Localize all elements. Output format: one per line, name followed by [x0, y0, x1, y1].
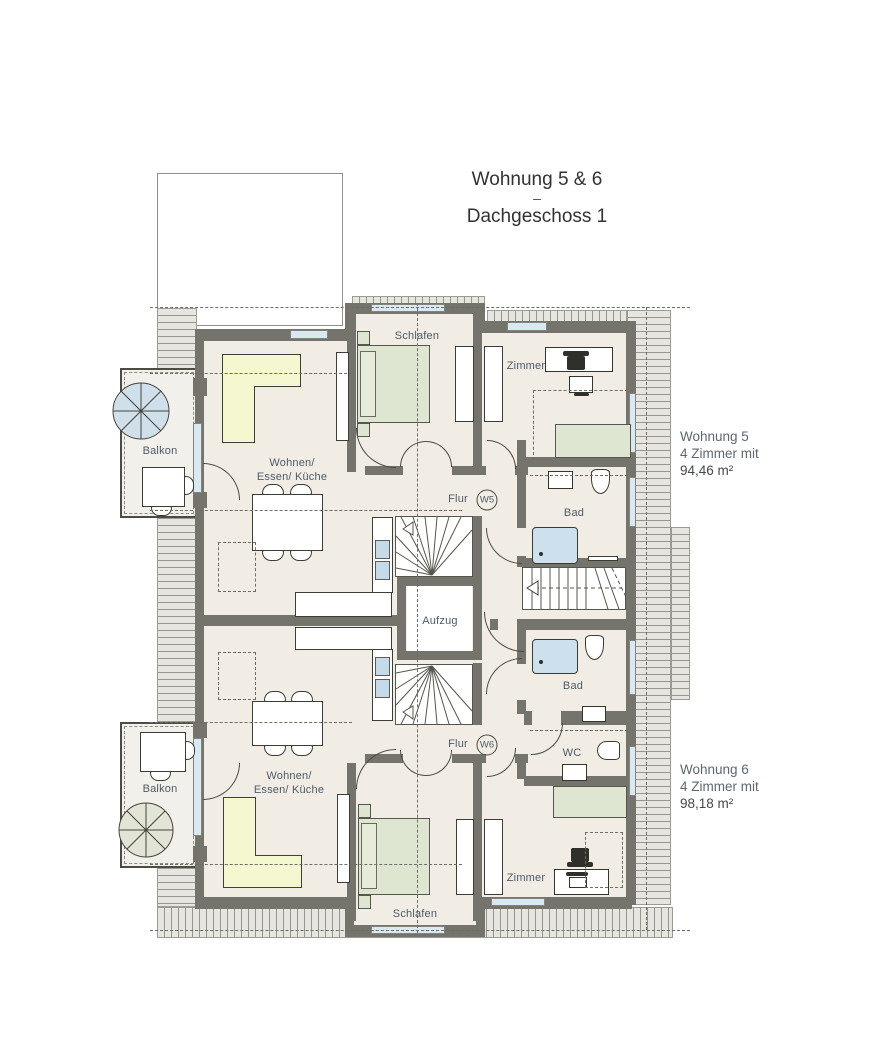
wardrobe: [455, 346, 474, 422]
room-label-bad-w6: Bad: [563, 680, 583, 692]
sofa-symbol: [222, 386, 255, 443]
roof-slope-dashed-line: [646, 307, 647, 930]
shower-drain: [539, 660, 543, 664]
chair: [264, 691, 286, 702]
room-label-schlafen-w6: Schlafen: [393, 908, 437, 920]
kitchen-counter: [295, 627, 392, 650]
unit-badge-w6: W6: [477, 735, 498, 756]
chair: [290, 484, 312, 495]
wall-segment: [473, 763, 482, 921]
title-separator: –: [467, 191, 607, 206]
sideboard: [555, 424, 631, 458]
sofa-joint: [223, 385, 254, 388]
roof-slope-dashed-line: [530, 475, 628, 476]
room-label-wohnen-w5: Wohnen/: [269, 457, 314, 469]
wall-segment: [397, 577, 482, 586]
roof-slope-dashed-line: [150, 510, 462, 511]
wall-segment: [452, 466, 486, 475]
room-label-essen-w6: Essen/ Küche: [254, 784, 324, 796]
room-label-schlafen-w5: Schlafen: [395, 330, 439, 342]
nightstand: [358, 895, 371, 909]
sideboard: [553, 786, 627, 818]
roof-hatch: [157, 308, 197, 373]
wall-segment: [515, 754, 528, 763]
round-table-parasol: [118, 802, 175, 859]
wardrobe: [484, 819, 503, 895]
room-label-bad-w5: Bad: [564, 507, 584, 519]
room-label-zimmer-w5: Zimmer: [507, 360, 545, 372]
washbasin: [582, 706, 606, 722]
wall-segment: [193, 846, 207, 862]
wardrobe: [337, 794, 350, 883]
wardrobe: [484, 346, 503, 422]
window: [629, 477, 636, 527]
wall-segment: [476, 321, 632, 333]
appliance: [375, 540, 390, 559]
square-table: [140, 732, 186, 772]
nightstand: [358, 804, 371, 818]
wall-segment: [524, 619, 628, 630]
room-label-balkon-w6: Balkon: [143, 783, 178, 795]
wardrobe: [336, 352, 349, 441]
winder-stair-w5: [395, 516, 473, 577]
wall-segment: [473, 516, 482, 578]
wall-segment: [452, 754, 486, 763]
washbasin: [562, 764, 587, 781]
wohnung6-rooms: 4 Zimmer mit: [680, 778, 759, 795]
wohnung6-area: 98,18 m²: [680, 795, 759, 812]
window: [491, 898, 545, 906]
shower: [532, 527, 578, 564]
wall-segment: [195, 329, 352, 341]
room-label-essen-w5: Essen/ Küche: [257, 471, 327, 483]
dining-table: [252, 701, 323, 746]
floor-plan: Wohnung 5 & 6 – Dachgeschoss 1 Wohnung 5…: [0, 0, 889, 1063]
appliance: [375, 657, 390, 676]
wohnung5-area: 94,46 m²: [680, 462, 759, 479]
wall-segment: [365, 466, 403, 475]
winder-stair-w6: [395, 664, 473, 725]
wall-segment: [193, 378, 207, 396]
office-chair: [567, 356, 585, 370]
wall-segment: [473, 577, 482, 660]
roof-hatch: [157, 868, 197, 907]
unit-badge-w5: W5: [477, 490, 498, 511]
nightstand: [357, 331, 370, 345]
roof-slope-dashed-line: [150, 864, 462, 865]
wohnung6-name: Wohnung 6: [680, 761, 759, 778]
room-label-wc-w6: WC: [563, 747, 582, 759]
room-label-wohnen-w6: Wohnen/: [266, 770, 311, 782]
chair: [262, 484, 284, 495]
window: [193, 423, 202, 493]
wardrobe: [456, 819, 474, 895]
room-label-balkon-w5: Balkon: [143, 445, 178, 457]
kitchen-counter: [295, 592, 392, 617]
room-label-aufzug: Aufzug: [422, 615, 457, 627]
toilet: [597, 741, 620, 760]
wohnung5-name: Wohnung 5: [680, 428, 759, 445]
appliance: [375, 561, 390, 580]
appliance: [375, 679, 390, 698]
roof-hatch: [671, 527, 690, 700]
square-table: [142, 467, 185, 507]
roof-slope-dashed-line: [150, 722, 352, 723]
towel-rail: [588, 556, 618, 561]
roof-outline-rect: [157, 173, 343, 326]
shower: [532, 639, 578, 674]
drawing-title: Wohnung 5 & 6 – Dachgeschoss 1: [467, 169, 607, 228]
wall-segment: [193, 722, 207, 738]
window: [290, 330, 328, 339]
height-line-dashed: [218, 542, 256, 592]
height-line-dashed: [218, 652, 256, 700]
sofa-joint: [224, 854, 255, 857]
bed-pillow: [360, 351, 376, 417]
monitor-stand: [574, 393, 589, 396]
wohnung5-annotation: Wohnung 5 4 Zimmer mit 94,46 m²: [680, 428, 759, 479]
wall-segment: [473, 663, 482, 725]
room-label-flur-w5: Flur: [448, 493, 468, 505]
window: [629, 746, 636, 796]
title-line1: Wohnung 5 & 6: [467, 169, 607, 191]
roof-slope-dashed-line: [533, 390, 534, 460]
window: [507, 322, 547, 331]
sofa-symbol: [223, 855, 302, 888]
dining-table: [252, 494, 323, 551]
roof-slope-dashed-line: [150, 307, 690, 308]
round-table-parasol: [112, 382, 170, 440]
room-label-zimmer-w6: Zimmer: [507, 872, 545, 884]
window: [371, 304, 445, 312]
roof-slope-dashed-line: [533, 390, 633, 391]
roof-slope-dashed-line: [150, 930, 690, 931]
title-line2: Dachgeschoss 1: [467, 206, 607, 228]
wohnung5-rooms: 4 Zimmer mit: [680, 445, 759, 462]
roof-slope-dashed-line: [417, 303, 418, 933]
wall-segment: [473, 314, 482, 472]
chair: [291, 691, 313, 702]
sofa-symbol: [223, 797, 256, 856]
wall-segment: [517, 440, 526, 528]
washbasin: [548, 471, 573, 489]
wall-segment: [397, 577, 406, 660]
bed-pillow: [361, 823, 377, 889]
window: [629, 640, 636, 695]
wall-segment: [195, 897, 355, 909]
shower-drain: [539, 552, 543, 556]
wohnung6-annotation: Wohnung 6 4 Zimmer mit 98,18 m²: [680, 761, 759, 812]
wall-segment: [524, 457, 628, 467]
sofa-symbol: [222, 354, 301, 387]
height-line-dashed: [585, 832, 623, 888]
main-staircase: [522, 567, 626, 610]
roof-hatch: [157, 518, 197, 722]
roof-slope-dashed-line: [150, 373, 352, 374]
room-label-flur-w6: Flur: [448, 738, 468, 750]
wall-segment: [397, 651, 482, 660]
